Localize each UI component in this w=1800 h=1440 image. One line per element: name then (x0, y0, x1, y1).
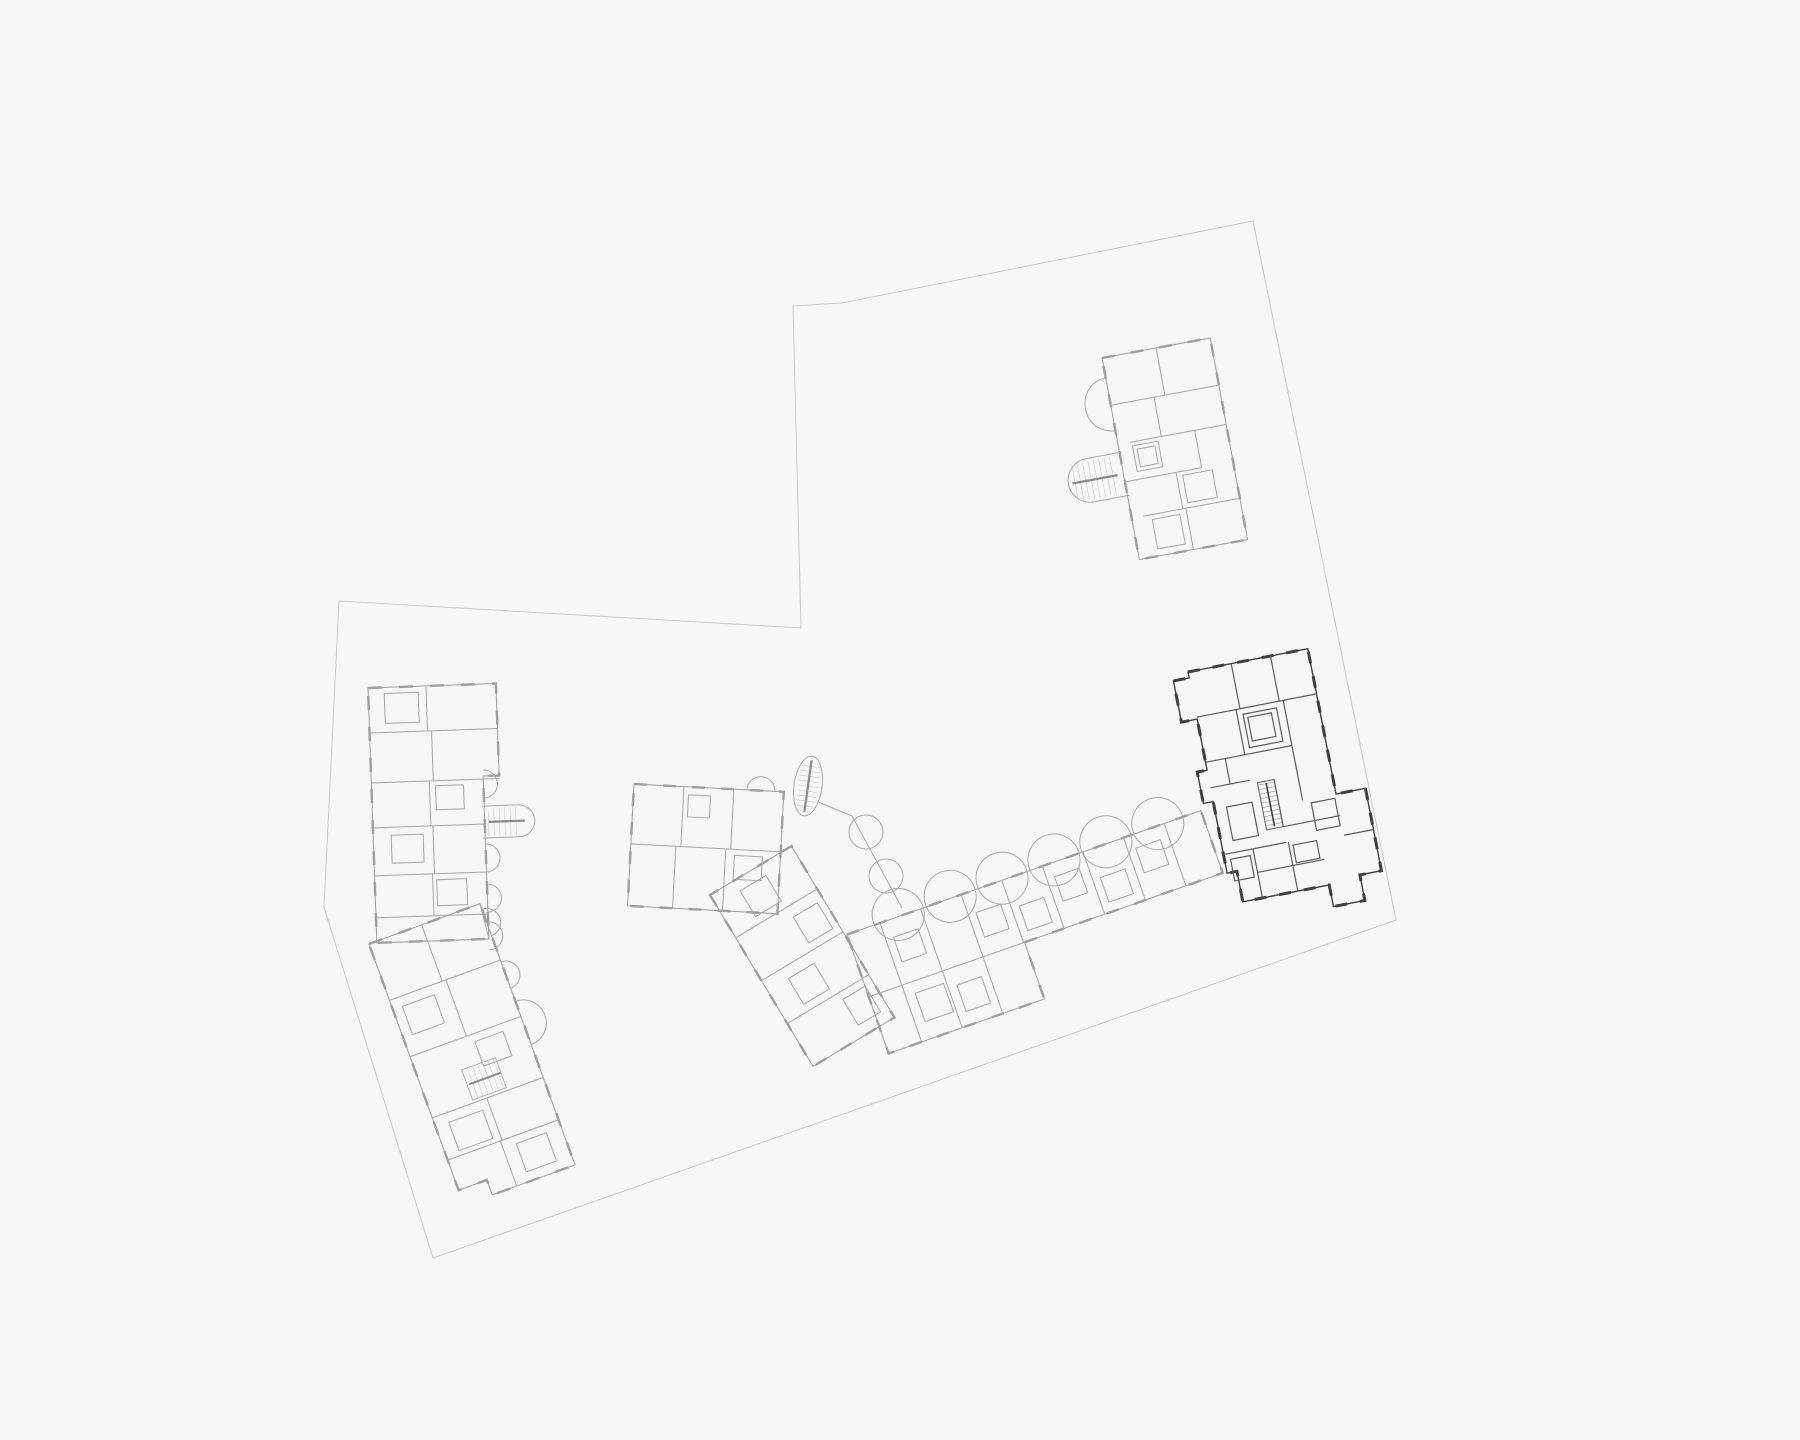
dark-building-outline (1172, 643, 1386, 928)
central-wing-internal-walls (716, 856, 888, 1056)
dark-building-internal-walls (1188, 643, 1382, 904)
left-slab-lower-outline (369, 904, 575, 1206)
central-block-internal-walls (628, 784, 784, 914)
central-block-outline (628, 784, 784, 914)
courtyard-link-wall (818, 802, 902, 908)
building-central-wing (710, 846, 894, 1066)
left-slab-lower-wall-piers (369, 904, 575, 1206)
courtyard-balcony-1 (849, 815, 883, 849)
left-slab-outline (368, 684, 505, 943)
site-plan-canvas (0, 0, 1800, 1440)
long-wing-internal-walls (847, 824, 1206, 1054)
dark-building-wall-piers (1172, 643, 1386, 928)
long-wing-balcony-circles (865, 790, 1191, 947)
courtyard-balcony-2 (869, 859, 903, 893)
left-slab-lower-internal-walls (369, 904, 575, 1206)
left-slab-kink-filler (377, 904, 489, 943)
long-wing-wall-piers (847, 811, 1243, 1054)
building-top-right-outline (1102, 338, 1248, 560)
building-long-wing (838, 784, 1243, 1053)
building-top-right-wall-piers (1102, 338, 1248, 560)
central-stair-tower (790, 754, 826, 817)
parcel-boundary (324, 221, 1396, 1258)
building-top-right-internal-walls (1102, 338, 1248, 560)
building-dark (1172, 643, 1386, 928)
left-slab-stair-bar (489, 821, 525, 822)
building-central-block (628, 770, 785, 914)
long-wing-outline (847, 811, 1243, 1054)
building-top-right (1047, 338, 1248, 570)
central-block-wall-piers (628, 784, 784, 914)
